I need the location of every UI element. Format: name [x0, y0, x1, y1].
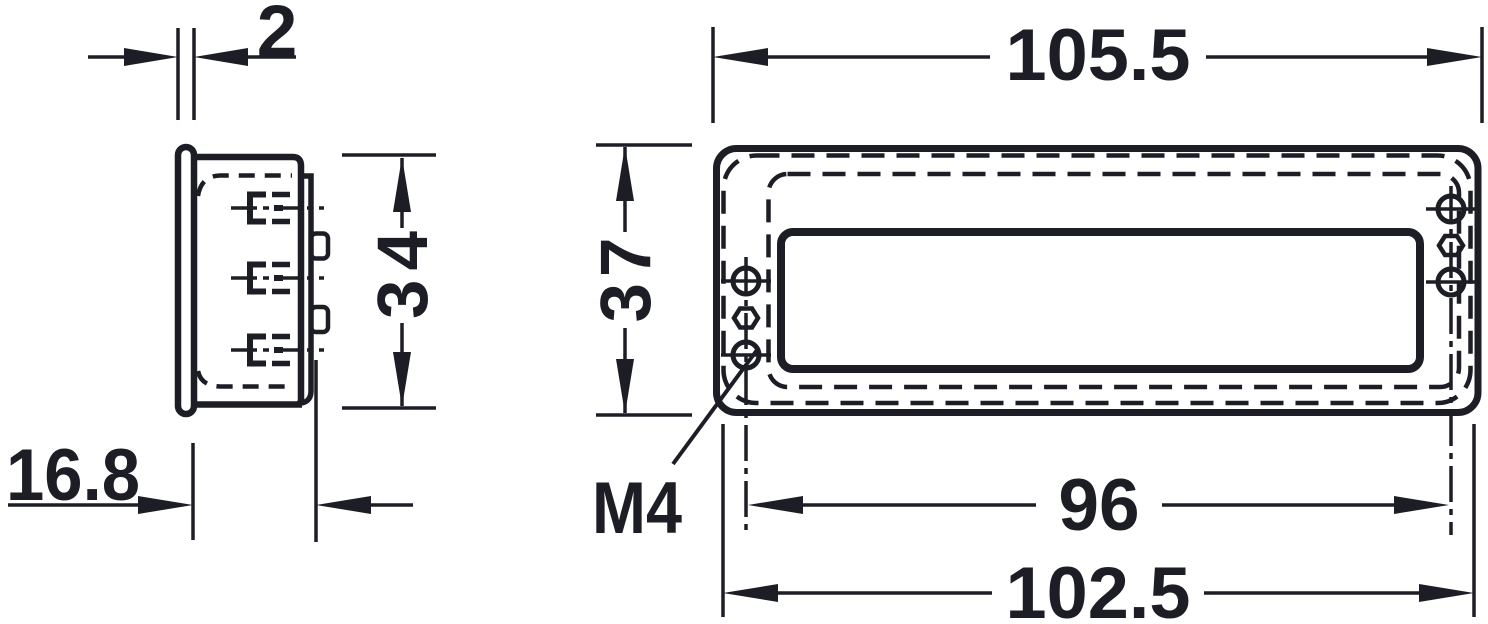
arrowhead [1427, 48, 1482, 66]
arrowhead [1419, 584, 1474, 602]
arrowhead [616, 359, 634, 414]
arrowhead [723, 584, 778, 602]
side-section-view [178, 147, 328, 414]
arrowhead [616, 146, 634, 201]
arrowhead [194, 48, 248, 66]
dim-label-mounting-depth: 16.8 [6, 435, 140, 516]
dim-label-flange-thickness: 2 [257, 0, 298, 72]
dim-mounting-depth: 16.8 [6, 360, 413, 542]
arrowhead [393, 157, 411, 212]
dim-hole-spacing: 96 [748, 465, 1449, 546]
dim-overall-width: 105.5 [713, 15, 1482, 123]
drawing-page: 2 105.5 34 37 16.8 [0, 0, 1488, 624]
recess-opening-outline [781, 232, 1420, 369]
arrowhead [316, 496, 371, 514]
body-hidden-outline [769, 174, 1460, 387]
dim-label-overall-height: 37 [587, 238, 666, 323]
technical-drawing-canvas: 2 105.5 34 37 16.8 [0, 0, 1488, 624]
arrowhead [138, 496, 193, 514]
dim-label-body-height: 34 [364, 231, 443, 320]
thread-callout: M4 [592, 350, 757, 549]
dim-label-cutout-width: 102.5 [1006, 553, 1191, 624]
dim-label-overall-width: 105.5 [1006, 15, 1191, 96]
flange-outline [178, 147, 194, 414]
arrowhead [124, 48, 178, 66]
dim-label-hole-spacing: 96 [1058, 465, 1139, 546]
arrowhead [713, 48, 768, 66]
arrowhead [1394, 496, 1449, 514]
tray-hidden-edge-bottom [198, 371, 292, 387]
arrowhead [748, 496, 803, 514]
dim-overall-height: 37 [587, 145, 692, 415]
dim-body-height: 34 [342, 155, 443, 408]
dim-flange-thickness: 2 [88, 0, 297, 120]
arrowhead [393, 352, 411, 407]
m4-label: M4 [592, 468, 682, 549]
